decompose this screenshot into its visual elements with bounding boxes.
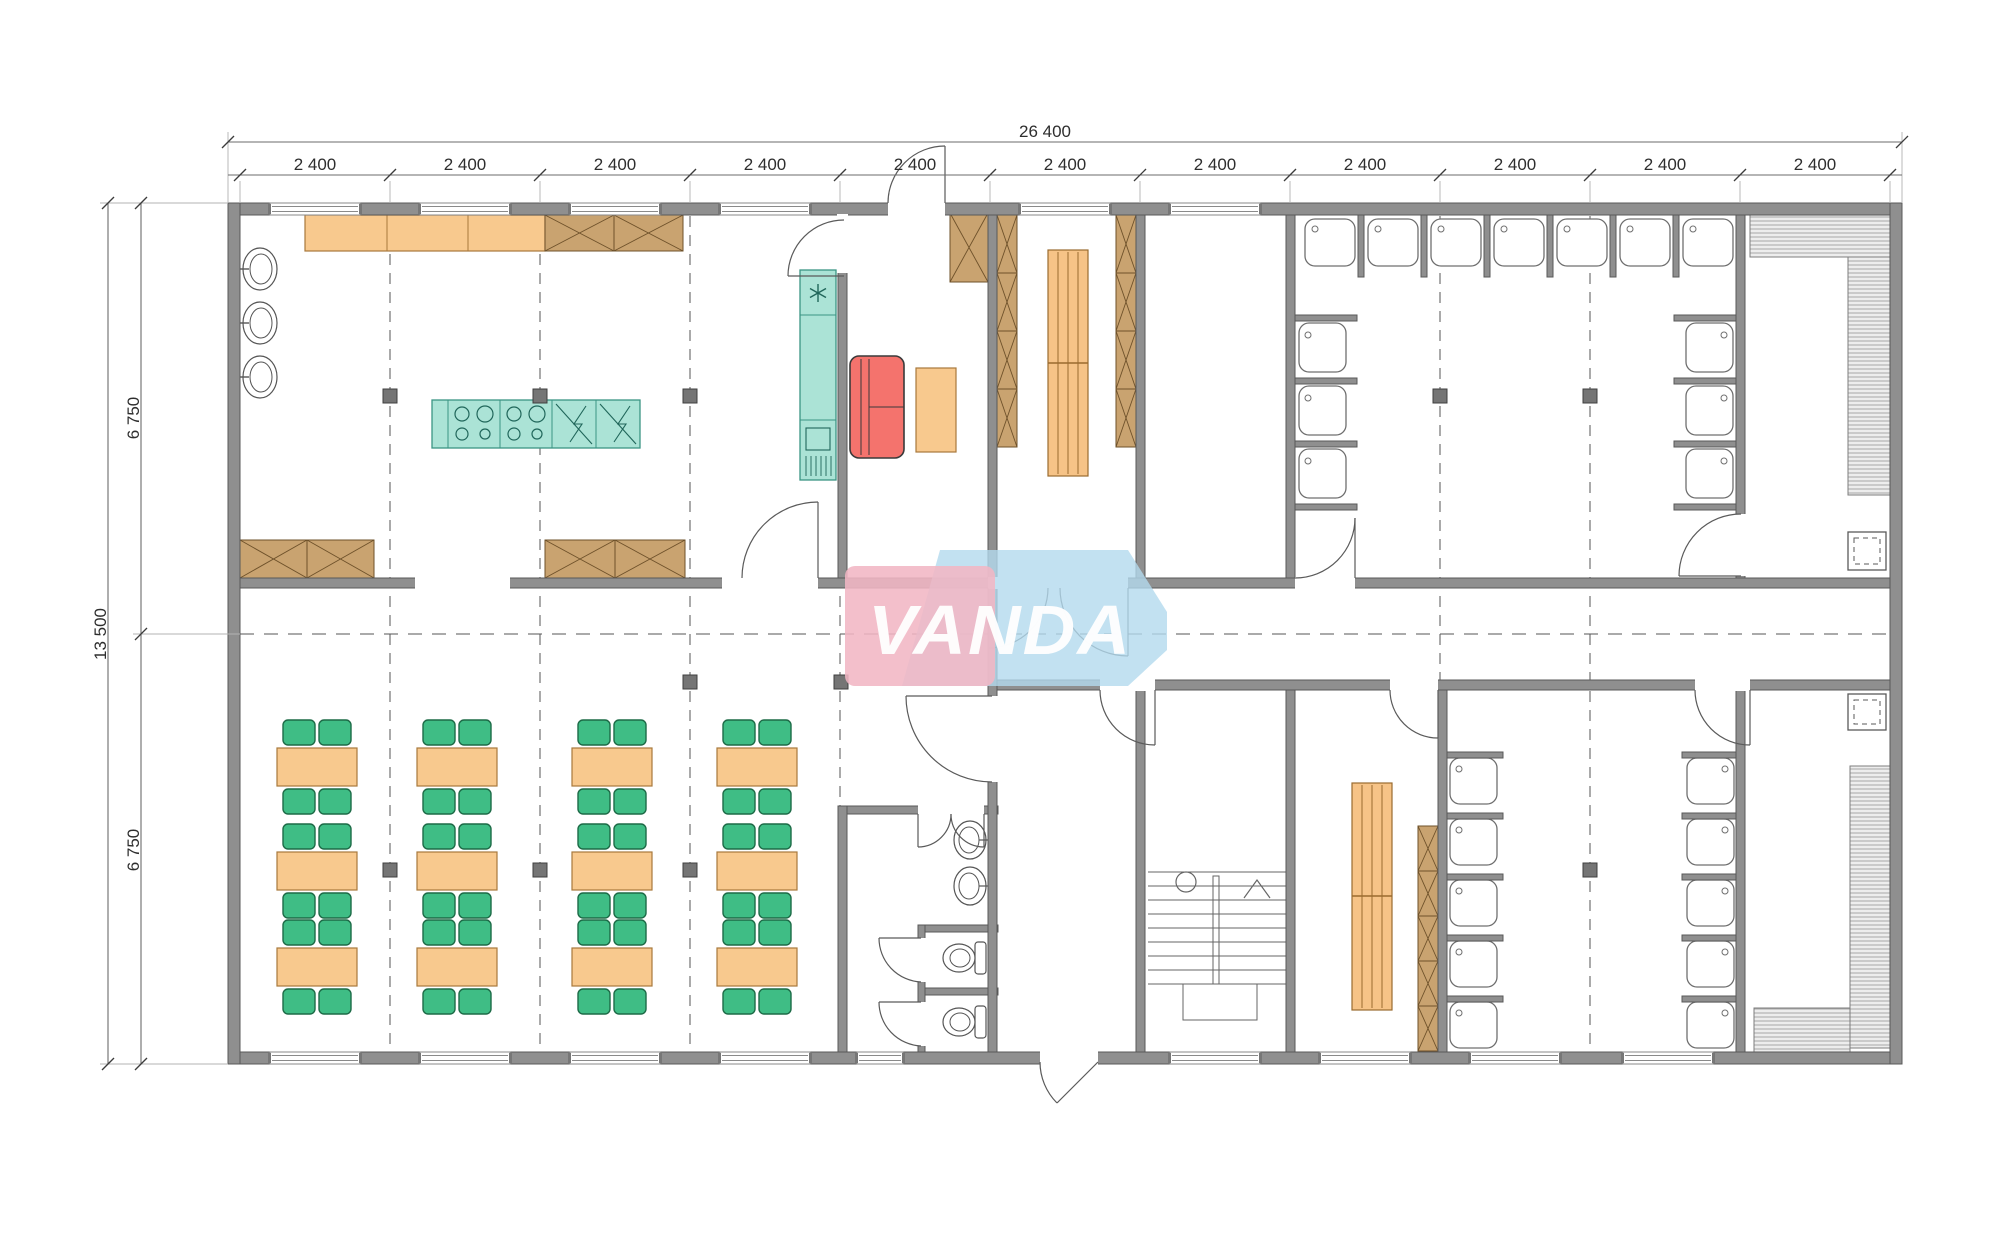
dining-table-group bbox=[717, 824, 797, 918]
dining-chair bbox=[283, 789, 315, 814]
stair-direction-arrow-icon bbox=[1244, 880, 1270, 898]
shower-stall bbox=[1687, 1002, 1734, 1048]
bay-dimension-label: 2 400 bbox=[1644, 155, 1687, 174]
shower-stall bbox=[1687, 880, 1734, 926]
dining-table-group bbox=[277, 824, 357, 918]
bay-dimension-label: 2 400 bbox=[1194, 155, 1237, 174]
door bbox=[788, 220, 844, 276]
dining-chair bbox=[614, 789, 646, 814]
side-table bbox=[916, 368, 956, 452]
vanda-logo: VANDA bbox=[845, 550, 1167, 686]
interior-wall bbox=[918, 925, 998, 932]
overall-width-label: 26 400 bbox=[1019, 122, 1071, 141]
dining-chair bbox=[459, 920, 491, 945]
dining-table-group bbox=[417, 920, 497, 1014]
interior-wall bbox=[1438, 690, 1447, 1052]
dining-table bbox=[417, 948, 497, 986]
dining-table-group bbox=[572, 824, 652, 918]
column-marker bbox=[533, 389, 547, 403]
column-marker bbox=[1433, 389, 1447, 403]
door bbox=[1295, 518, 1355, 578]
door-exterior bbox=[1040, 1062, 1098, 1103]
dining-table-group bbox=[717, 920, 797, 1014]
shower-stall bbox=[1686, 323, 1733, 372]
dining-table bbox=[717, 748, 797, 786]
kitchen-wall-sinks bbox=[240, 248, 277, 398]
dining-table bbox=[277, 852, 357, 890]
dining-chair bbox=[459, 989, 491, 1014]
dining-table-group bbox=[417, 720, 497, 814]
dining-chair bbox=[759, 789, 791, 814]
window bbox=[718, 203, 812, 215]
interior-wall bbox=[1136, 215, 1145, 578]
dining-chair bbox=[723, 920, 755, 945]
dining-chair bbox=[319, 920, 351, 945]
dining-table bbox=[417, 748, 497, 786]
bay-dimension-label: 2 400 bbox=[444, 155, 487, 174]
dining-chair bbox=[759, 989, 791, 1014]
column-marker bbox=[383, 863, 397, 877]
cabinet-crossed bbox=[545, 540, 685, 578]
dining-chair bbox=[578, 789, 610, 814]
bay-dimension-label: 2 400 bbox=[1494, 155, 1537, 174]
dining-chair bbox=[578, 824, 610, 849]
dining-table-group bbox=[417, 824, 497, 918]
shower-stall bbox=[1299, 323, 1346, 372]
shower-stall bbox=[1687, 758, 1734, 804]
window bbox=[1468, 1052, 1562, 1064]
bay-dimension-label: 2 400 bbox=[1044, 155, 1087, 174]
bay-dimension-label: 2 400 bbox=[744, 155, 787, 174]
dining-table bbox=[572, 748, 652, 786]
window bbox=[268, 203, 362, 215]
interior-wall bbox=[988, 215, 997, 578]
bay-dimension-label: 2 400 bbox=[1794, 155, 1837, 174]
column-marker bbox=[1583, 389, 1597, 403]
sauna-bench bbox=[1754, 766, 1890, 1052]
dining-table bbox=[277, 948, 357, 986]
shower-stall bbox=[1305, 219, 1355, 266]
column-marker bbox=[533, 863, 547, 877]
column-marker bbox=[683, 389, 697, 403]
shower-stall bbox=[1299, 386, 1346, 435]
bay-dimension-label: 2 400 bbox=[1344, 155, 1387, 174]
shower-stall bbox=[1450, 880, 1497, 926]
column-marker bbox=[383, 389, 397, 403]
washbasin bbox=[954, 821, 988, 859]
shower-stall bbox=[1299, 449, 1346, 498]
dining-chair bbox=[759, 720, 791, 745]
window bbox=[418, 1052, 512, 1064]
staircase bbox=[1148, 872, 1286, 1020]
dining-table bbox=[417, 852, 497, 890]
changing-bench bbox=[1048, 250, 1088, 476]
dining-chair bbox=[283, 989, 315, 1014]
floor-plan-sheet: 26 400 13 500 6 750 6 750 2 4002 4002 40… bbox=[0, 0, 2000, 1235]
dining-chair bbox=[423, 989, 455, 1014]
shower-stall bbox=[1450, 1002, 1497, 1048]
dining-chair bbox=[614, 720, 646, 745]
interior-wall bbox=[838, 806, 847, 1052]
fridge-freezer-unit bbox=[800, 270, 836, 480]
sauna-heater bbox=[1848, 532, 1886, 570]
dining-chair bbox=[578, 720, 610, 745]
stair-landing bbox=[1183, 984, 1257, 1020]
door bbox=[742, 502, 818, 578]
interior-wall bbox=[918, 988, 998, 995]
dining-chair bbox=[578, 989, 610, 1014]
dining-chair bbox=[319, 989, 351, 1014]
outer-wall-right bbox=[1890, 203, 1902, 1064]
dining-chair bbox=[723, 824, 755, 849]
dining-table bbox=[717, 852, 797, 890]
shower-stall bbox=[1683, 219, 1733, 266]
dining-chair bbox=[423, 789, 455, 814]
dining-table-group bbox=[717, 720, 797, 814]
shower-stall bbox=[1687, 941, 1734, 987]
dining-chair bbox=[423, 720, 455, 745]
dining-chair bbox=[578, 920, 610, 945]
toilet bbox=[943, 942, 986, 974]
dining-chair bbox=[759, 893, 791, 918]
kitchen-wall-sink bbox=[240, 248, 277, 290]
height-segment-label: 6 750 bbox=[124, 397, 143, 440]
dining-chair bbox=[319, 720, 351, 745]
dining-chair bbox=[759, 824, 791, 849]
locker-strip bbox=[1418, 826, 1438, 1051]
dining-chair bbox=[319, 893, 351, 918]
door bbox=[1390, 690, 1438, 738]
locker-strip bbox=[950, 213, 988, 282]
dining-chair bbox=[459, 893, 491, 918]
dining-chair bbox=[459, 720, 491, 745]
shower-stall bbox=[1450, 819, 1497, 865]
logo-text: VANDA bbox=[868, 591, 1132, 669]
dining-chair bbox=[723, 720, 755, 745]
cabinet-crossed bbox=[240, 540, 374, 578]
dining-chair bbox=[283, 920, 315, 945]
dining-chair bbox=[614, 893, 646, 918]
shower-stall bbox=[1450, 941, 1497, 987]
floor-plan: 26 400 13 500 6 750 6 750 2 4002 4002 40… bbox=[0, 0, 2000, 1235]
dining-chair bbox=[614, 824, 646, 849]
sofa bbox=[850, 356, 904, 458]
locker-strip bbox=[997, 215, 1017, 447]
kitchen-wall-sink bbox=[240, 302, 277, 344]
column-marker bbox=[1583, 863, 1597, 877]
dining-table bbox=[572, 948, 652, 986]
shower-stall bbox=[1494, 219, 1544, 266]
door bbox=[1100, 690, 1155, 745]
window bbox=[1621, 1052, 1715, 1064]
dining-chair bbox=[283, 824, 315, 849]
bay-dimension-label: 2 400 bbox=[294, 155, 337, 174]
dining-table-group bbox=[572, 720, 652, 814]
dining-chair bbox=[723, 789, 755, 814]
window bbox=[568, 1052, 662, 1064]
column-marker bbox=[683, 863, 697, 877]
dining-chair bbox=[283, 893, 315, 918]
dining-chair bbox=[319, 824, 351, 849]
window bbox=[718, 1052, 812, 1064]
column-marker bbox=[683, 675, 697, 689]
dining-chair bbox=[319, 789, 351, 814]
height-segment-label: 6 750 bbox=[124, 829, 143, 872]
window bbox=[1318, 1052, 1412, 1064]
dining-chair bbox=[578, 893, 610, 918]
dining-chair bbox=[459, 789, 491, 814]
dining-table-group bbox=[572, 920, 652, 1014]
cabinet-crossed bbox=[545, 215, 683, 251]
washbasin bbox=[954, 867, 988, 905]
window bbox=[1168, 203, 1262, 215]
dining-table-group bbox=[277, 720, 357, 814]
dining-table bbox=[277, 748, 357, 786]
dining-table bbox=[572, 852, 652, 890]
dining-table-group bbox=[277, 920, 357, 1014]
kitchen-wall-sink bbox=[240, 356, 277, 398]
sauna-heater bbox=[1848, 694, 1886, 730]
window bbox=[1018, 203, 1112, 215]
interior-wall bbox=[1286, 215, 1295, 578]
door bbox=[906, 696, 992, 782]
dining-chair bbox=[759, 920, 791, 945]
dining-chair bbox=[423, 824, 455, 849]
interior-wall bbox=[1286, 690, 1295, 1052]
door-wc-stall bbox=[879, 938, 921, 982]
shower-stall bbox=[1686, 386, 1733, 435]
shower-stall bbox=[1687, 819, 1734, 865]
door-wc-stall bbox=[879, 1002, 921, 1046]
kitchen-island bbox=[432, 400, 640, 448]
dining-table bbox=[717, 948, 797, 986]
changing-bench bbox=[1352, 783, 1392, 1010]
dining-chair bbox=[283, 720, 315, 745]
dining-chair bbox=[423, 893, 455, 918]
locker-strip bbox=[1116, 215, 1136, 447]
shower-stall bbox=[1431, 219, 1481, 266]
stair-newel-icon bbox=[1176, 872, 1196, 892]
shower-stall bbox=[1686, 449, 1733, 498]
window bbox=[855, 1052, 905, 1064]
shower-stall bbox=[1368, 219, 1418, 266]
toilet bbox=[943, 1006, 986, 1038]
outer-wall-left bbox=[228, 203, 240, 1064]
dining-chair bbox=[459, 824, 491, 849]
window bbox=[1168, 1052, 1262, 1064]
dining-chair bbox=[614, 989, 646, 1014]
bay-dimension-label: 2 400 bbox=[894, 155, 937, 174]
window bbox=[268, 1052, 362, 1064]
dining-chair bbox=[614, 920, 646, 945]
overall-height-label: 13 500 bbox=[91, 608, 110, 660]
window bbox=[568, 203, 662, 215]
door bbox=[1679, 514, 1741, 576]
dining-chair bbox=[723, 893, 755, 918]
bay-dimension-label: 2 400 bbox=[594, 155, 637, 174]
kitchen-counter bbox=[305, 215, 545, 251]
sauna-bench bbox=[1750, 215, 1890, 495]
dining-chair bbox=[723, 989, 755, 1014]
shower-stall bbox=[1620, 219, 1670, 266]
dining-chair bbox=[423, 920, 455, 945]
shower-stall bbox=[1557, 219, 1607, 266]
shower-stall bbox=[1450, 758, 1497, 804]
window bbox=[418, 203, 512, 215]
